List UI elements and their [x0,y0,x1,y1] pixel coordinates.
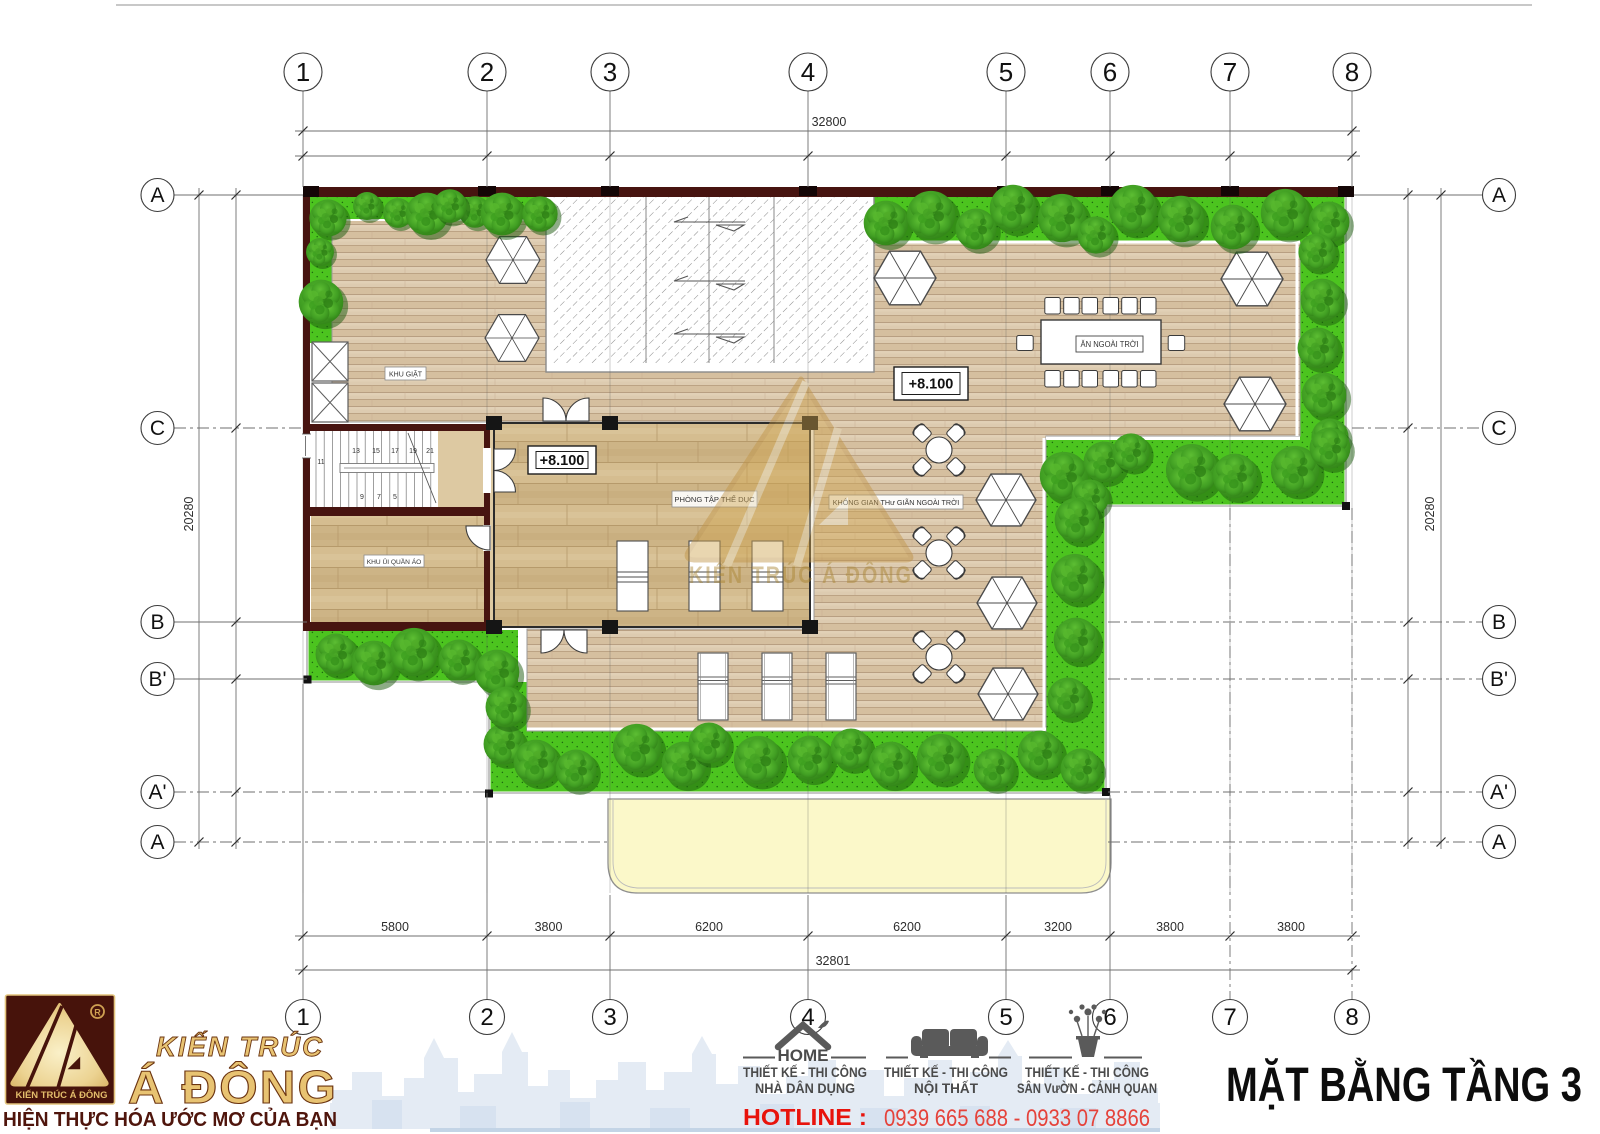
svg-text:20280: 20280 [182,497,196,532]
svg-text:+8.100: +8.100 [540,453,585,469]
svg-text:7: 7 [1223,1004,1236,1031]
svg-text:C: C [150,417,165,440]
svg-text:9: 9 [360,494,364,501]
svg-text:32801: 32801 [816,954,851,968]
svg-text:3800: 3800 [1156,920,1184,934]
svg-text:6: 6 [1103,57,1117,87]
svg-text:B': B' [1490,668,1508,691]
svg-text:A: A [1492,184,1506,207]
svg-text:3: 3 [603,57,617,87]
svg-text:HOTLINE :: HOTLINE : [743,1104,867,1130]
svg-text:SÂN VưỜN - CẢNH QUAN: SÂN VưỜN - CẢNH QUAN [1017,1081,1157,1096]
svg-text:R: R [94,1008,101,1018]
svg-text:7: 7 [377,494,381,501]
svg-text:1: 1 [296,57,310,87]
svg-text:2: 2 [480,57,494,87]
svg-text:A: A [150,184,164,207]
svg-text:13: 13 [352,448,360,455]
svg-text:1: 1 [296,1004,309,1031]
svg-text:19: 19 [409,448,417,455]
svg-text:B': B' [148,668,166,691]
svg-text:5: 5 [999,1004,1012,1031]
svg-text:20280: 20280 [1423,497,1437,532]
svg-text:6: 6 [1103,1004,1116,1031]
svg-text:8: 8 [1345,57,1359,87]
svg-text:Á ĐÔNG: Á ĐÔNG [128,1061,338,1113]
svg-text:NỘI THẤT: NỘI THẤT [914,1081,979,1096]
svg-text:KIẾN TRÚC Á ĐÔNG: KIẾN TRÚC Á ĐÔNG [689,561,913,589]
svg-text:5800: 5800 [381,920,409,934]
svg-text:8: 8 [1345,1004,1358,1031]
svg-text:6200: 6200 [695,920,723,934]
svg-text:A': A' [148,781,166,804]
svg-text:5: 5 [999,57,1013,87]
svg-text:+8.100: +8.100 [909,377,954,393]
svg-text:2: 2 [480,1004,493,1031]
svg-text:21: 21 [426,448,434,455]
svg-text:7: 7 [1223,57,1237,87]
svg-text:3800: 3800 [535,920,563,934]
svg-text:A: A [150,831,164,854]
svg-text:4: 4 [801,57,815,87]
svg-text:32800: 32800 [812,115,847,129]
svg-text:KIẾN TRÚC: KIẾN TRÚC [156,1031,324,1062]
svg-text:B: B [1492,611,1506,634]
svg-text:C: C [1491,417,1506,440]
svg-text:KIẾN TRÚC Á ĐÔNG: KIẾN TRÚC Á ĐÔNG [16,1089,108,1101]
svg-text:11: 11 [317,459,324,466]
svg-text:THIẾT KẾ - THI CÔNG: THIẾT KẾ - THI CÔNG [743,1065,867,1080]
svg-text:ĂN NGOÀI TRỜI: ĂN NGOÀI TRỜI [1081,340,1139,349]
svg-text:NHÀ DÂN DỤNG: NHÀ DÂN DỤNG [755,1081,855,1096]
svg-text:A: A [1492,831,1506,854]
svg-text:15: 15 [372,448,380,455]
svg-text:6200: 6200 [893,920,921,934]
svg-text:KHU GIẶT: KHU GIẶT [389,369,423,378]
svg-text:5: 5 [393,494,397,501]
svg-text:3: 3 [603,1004,616,1031]
svg-text:3200: 3200 [1044,920,1072,934]
svg-text:THIẾT KẾ - THI CÔNG: THIẾT KẾ - THI CÔNG [1025,1065,1149,1080]
svg-text:0939 665 688 - 0933 07 8866: 0939 665 688 - 0933 07 8866 [884,1105,1150,1132]
svg-text:A': A' [1490,781,1508,804]
svg-text:HOME: HOME [778,1046,829,1065]
svg-text:HIỆN THỰC HÓA ƯỚC MƠ CỦA BẠN: HIỆN THỰC HÓA ƯỚC MƠ CỦA BẠN [3,1107,337,1131]
svg-text:MẶT BẰNG TẦNG 3: MẶT BẰNG TẦNG 3 [1226,1058,1582,1112]
svg-text:3800: 3800 [1277,920,1305,934]
svg-text:17: 17 [391,448,399,455]
svg-text:B: B [150,611,164,634]
svg-text:THIẾT KẾ - THI CÔNG: THIẾT KẾ - THI CÔNG [884,1065,1008,1080]
